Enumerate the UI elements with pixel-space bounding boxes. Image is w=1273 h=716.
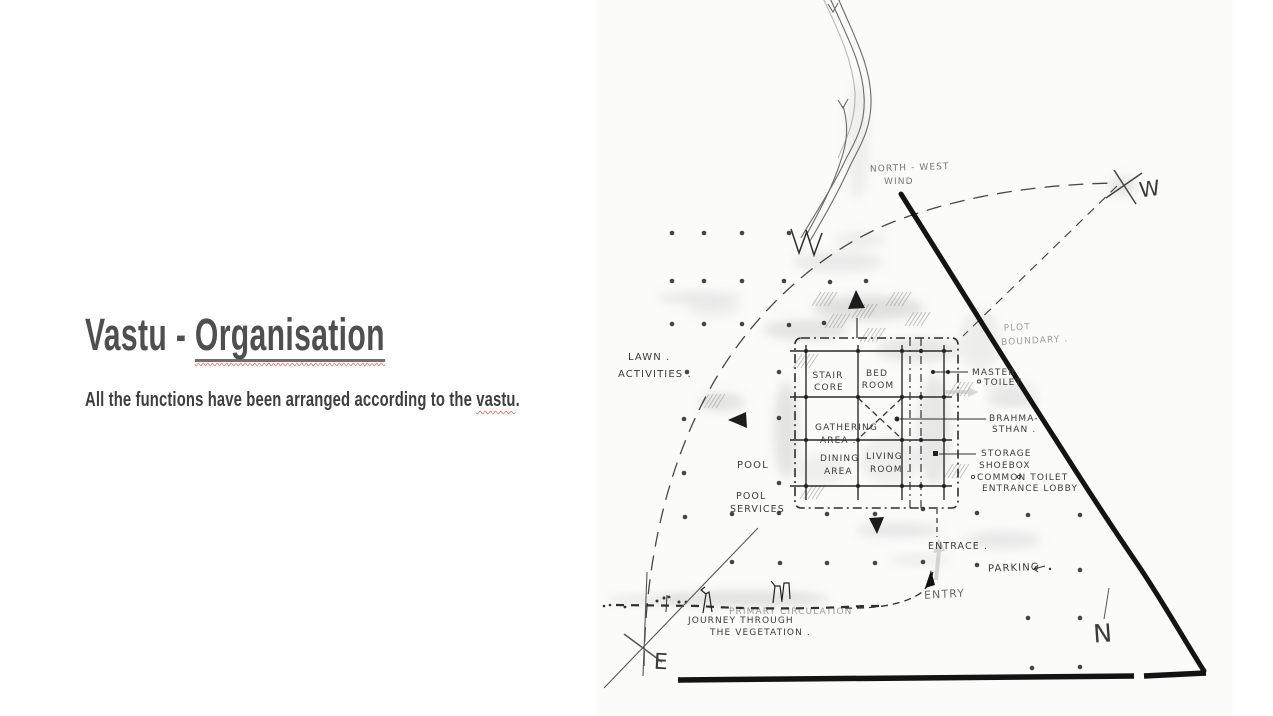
label-parking: PARKING [988,562,1040,575]
compass-north-letter: N [1092,618,1114,648]
label-dining-1: DINING [820,454,859,464]
label-activities: ACTIVITIES . [618,369,692,380]
title-plain-text: Vastu - [85,309,195,360]
storage-leader-dot [933,451,938,456]
brahmasthan-leader-dot [895,417,899,421]
label-storage-3: COMMON TOILET [977,473,1068,483]
label-pool: POOL [737,460,769,471]
sketch-svg: W E N LAWN . ACTIVITIES . POOL POOL SERV… [597,0,1233,716]
label-entrance: ENTRACE . [928,541,988,552]
slide-canvas: Vastu - Organisation All the functions h… [0,0,1273,716]
label-pool-services-1: POOL [736,491,766,502]
slide-title: Vastu - Organisation [85,311,385,362]
label-journey-1: JOURNEY THROUGH [687,616,794,626]
label-storage-4: ENTRANCE LOBBY [982,484,1078,494]
label-primary-circulation: PRIMARY CIRCULATION [729,607,852,617]
label-brahmasthan-2: STHAN . [992,425,1036,435]
label-master-toilet-1: MASTER [972,368,1016,378]
label-master-toilet-2: TOILET [983,378,1022,388]
label-pool-services-2: SERVICES [730,504,785,515]
label-stair-core-1: STAIR [812,371,843,381]
label-living-1: LIVING [866,452,903,462]
label-dining-2: AREA . [824,467,861,477]
label-gathering-1: GATHERING [815,423,878,433]
label-journey-2: THE VEGETATION . [709,628,811,638]
compass-east-letter: E [653,650,669,676]
label-bed-room-2: ROOM [862,381,895,391]
label-stair-core-2: CORE [814,383,844,393]
compass-west-letter: W [1138,176,1163,203]
label-gathering-2: AREA . [820,436,857,446]
label-storage-2: SHOEBOX [979,461,1031,471]
label-brahmasthan-1: BRAHMA- [989,414,1039,424]
subtitle-squiggled-word: vastu [476,389,515,411]
label-entry: ENTRY [924,587,966,602]
title-underlined-word: Organisation [195,311,385,362]
label-nw-wind-2: WIND [884,177,914,187]
label-storage-1: STORAGE [981,449,1032,459]
subtitle-text-before: All the functions have been arranged acc… [85,389,476,411]
label-plot-boundary-1: PLOT [1004,322,1032,333]
slide-subtitle: All the functions have been arranged acc… [85,389,520,412]
label-bed-room-1: BED [866,369,888,379]
vastu-sketch-image: W E N LAWN . ACTIVITIES . POOL POOL SERV… [597,0,1233,716]
label-lawn: LAWN . [628,352,670,363]
title-squiggled-text: Organisation [195,309,385,360]
label-living-2: ROOM . [870,465,911,475]
subtitle-text-after: . [516,389,520,411]
